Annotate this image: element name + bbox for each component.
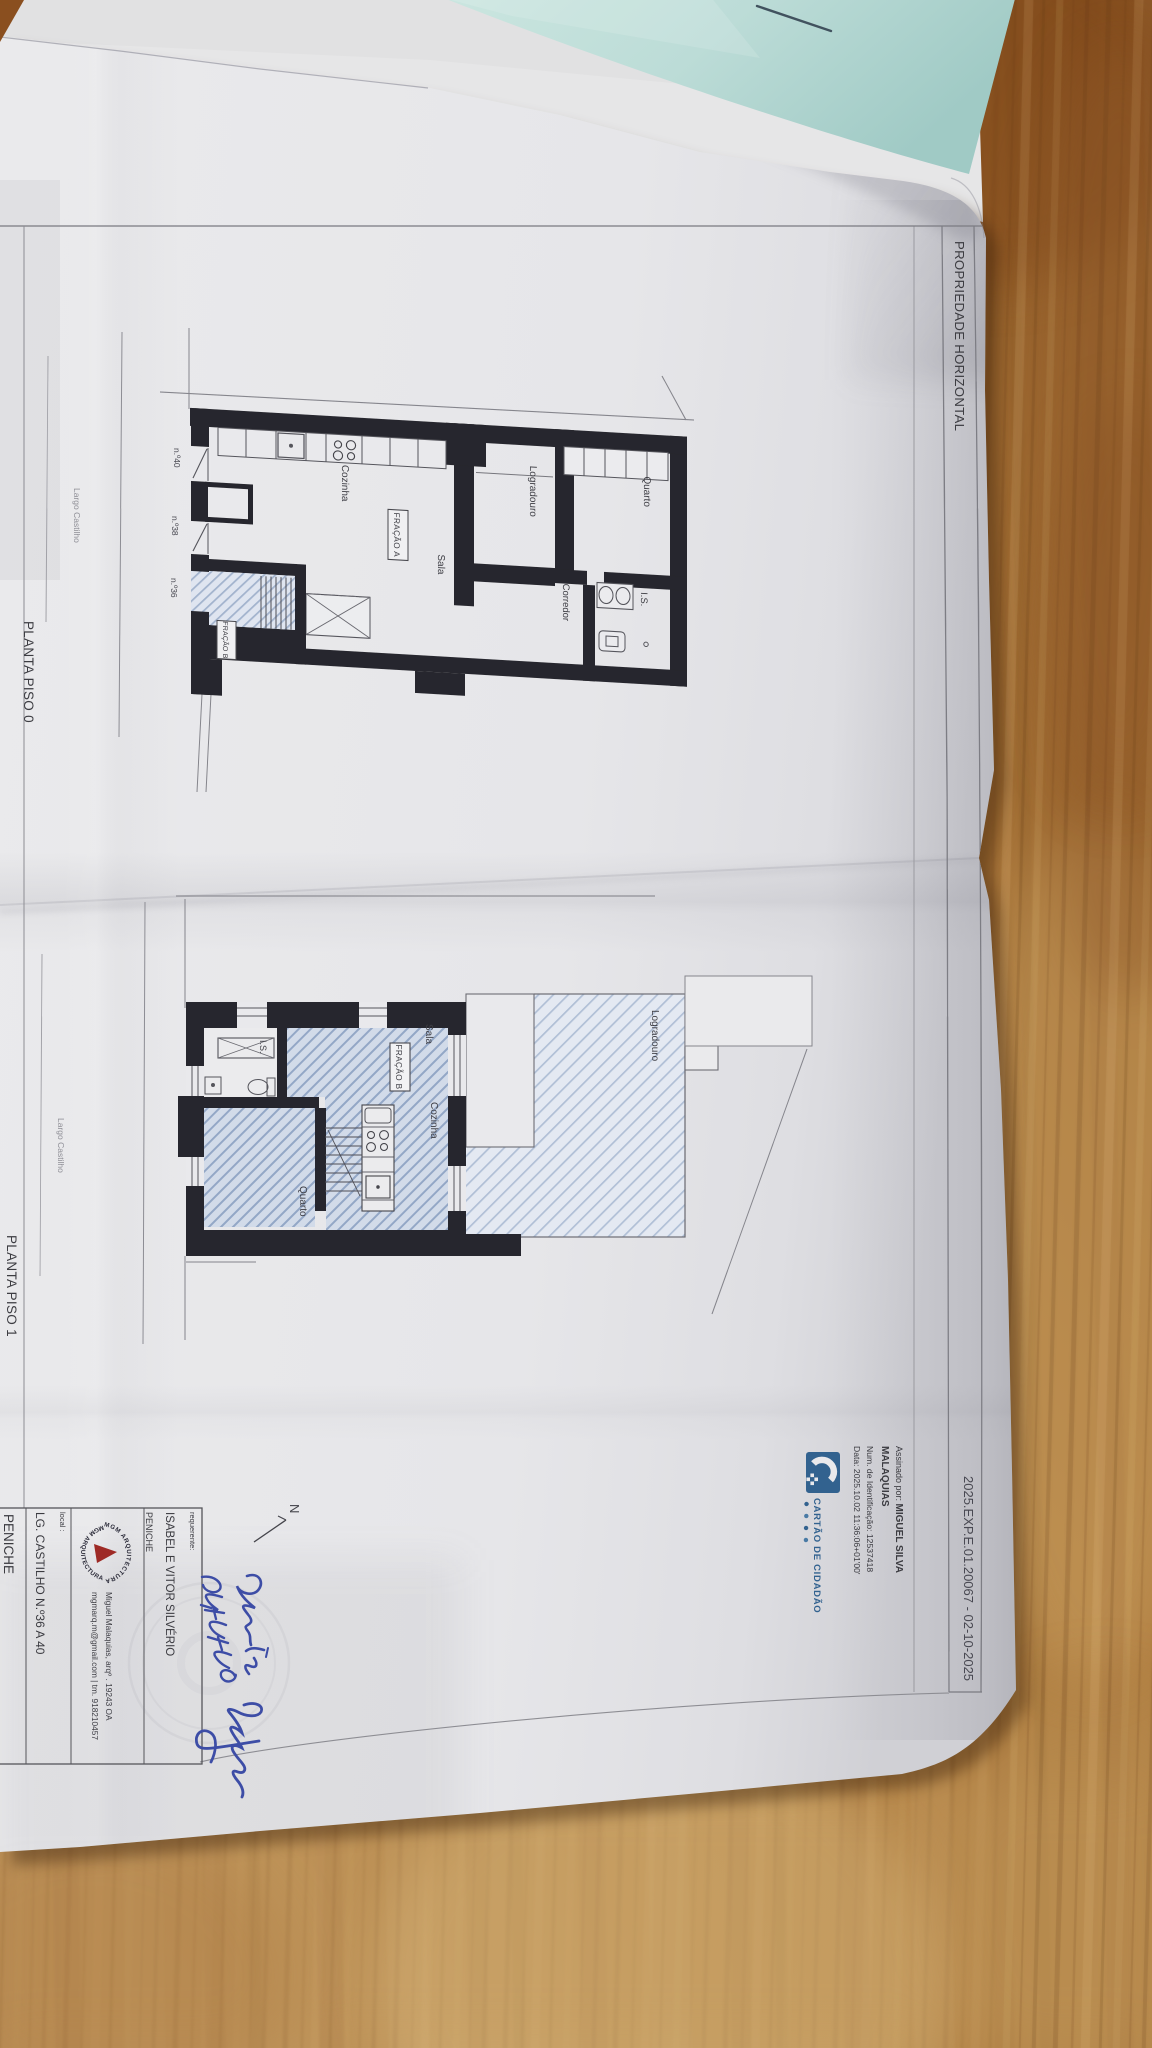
svg-text:FRAÇÃO A: FRAÇÃO A [392, 512, 402, 557]
svg-text:PENICHE: PENICHE [1, 1514, 16, 1574]
svg-text:CARTÃO DE CIDADÃO: CARTÃO DE CIDADÃO [811, 1498, 822, 1613]
svg-text:I.S.: I.S. [638, 592, 649, 607]
svg-text:PROPRIEDADE HORIZONTAL: PROPRIEDADE HORIZONTAL [952, 241, 967, 431]
svg-text:I.S.: I.S. [258, 1040, 268, 1054]
svg-text:Logradouro: Logradouro [649, 1010, 660, 1062]
svg-text:Largo Castilho: Largo Castilho [72, 488, 82, 543]
svg-text:n.º40: n.º40 [172, 448, 182, 468]
svg-text:Cozinha: Cozinha [428, 1102, 439, 1139]
svg-text:PLANTA PISO 0: PLANTA PISO 0 [21, 621, 36, 723]
svg-text:Largo Castilho: Largo Castilho [56, 1118, 66, 1173]
svg-text:Quarto: Quarto [297, 1186, 308, 1217]
svg-text:local :: local : [58, 1512, 67, 1532]
svg-text:requerente:: requerente: [188, 1512, 197, 1550]
svg-text:Sala: Sala [435, 554, 446, 575]
svg-text:Quarto: Quarto [641, 476, 652, 508]
svg-text:Assinado por: MIGUEL SILVA: Assinado por: MIGUEL SILVA [893, 1446, 904, 1573]
svg-text:n.º36: n.º36 [169, 578, 179, 598]
svg-text:FRAÇÃO B: FRAÇÃO B [394, 1044, 404, 1089]
svg-text:Num. de Identificação: 1253741: Num. de Identificação: 12537418 [865, 1446, 875, 1572]
svg-text:N: N [287, 1504, 302, 1513]
svg-text:Logradouro: Logradouro [527, 465, 538, 517]
svg-text:Data: 2025.10.02 11:36:06+01'0: Data: 2025.10.02 11:36:06+01'00' [852, 1446, 862, 1575]
svg-text:n.º38: n.º38 [170, 516, 180, 536]
svg-text:Cozinha: Cozinha [339, 465, 350, 503]
svg-text:MALAQUIAS: MALAQUIAS [879, 1446, 890, 1507]
svg-text:Corredor: Corredor [560, 583, 571, 621]
svg-text:PLANTA PISO 1: PLANTA PISO 1 [4, 1235, 19, 1337]
svg-text:FRAÇÃO B: FRAÇÃO B [221, 621, 230, 659]
svg-text:PENICHE: PENICHE [144, 1512, 154, 1552]
svg-text:LG. CASTILHO N.º36 A 40: LG. CASTILHO N.º36 A 40 [33, 1512, 47, 1655]
svg-text:Sala: Sala [423, 1024, 434, 1044]
svg-text:2025.EXP.E.01.20067 - 02-10-20: 2025.EXP.E.01.20067 - 02-10-2025 [961, 1476, 976, 1681]
svg-text:mgmarq.m@gmail.com | tm. 918: mgmarq.m@gmail.com | tm. 918210457 [90, 1592, 100, 1740]
svg-text:Miguel Malaquias, arqº . 192: Miguel Malaquias, arqº . 19243 OA [104, 1592, 114, 1721]
svg-text:ISABEL E VITOR SILVÉRIO: ISABEL E VITOR SILVÉRIO [163, 1512, 176, 1656]
